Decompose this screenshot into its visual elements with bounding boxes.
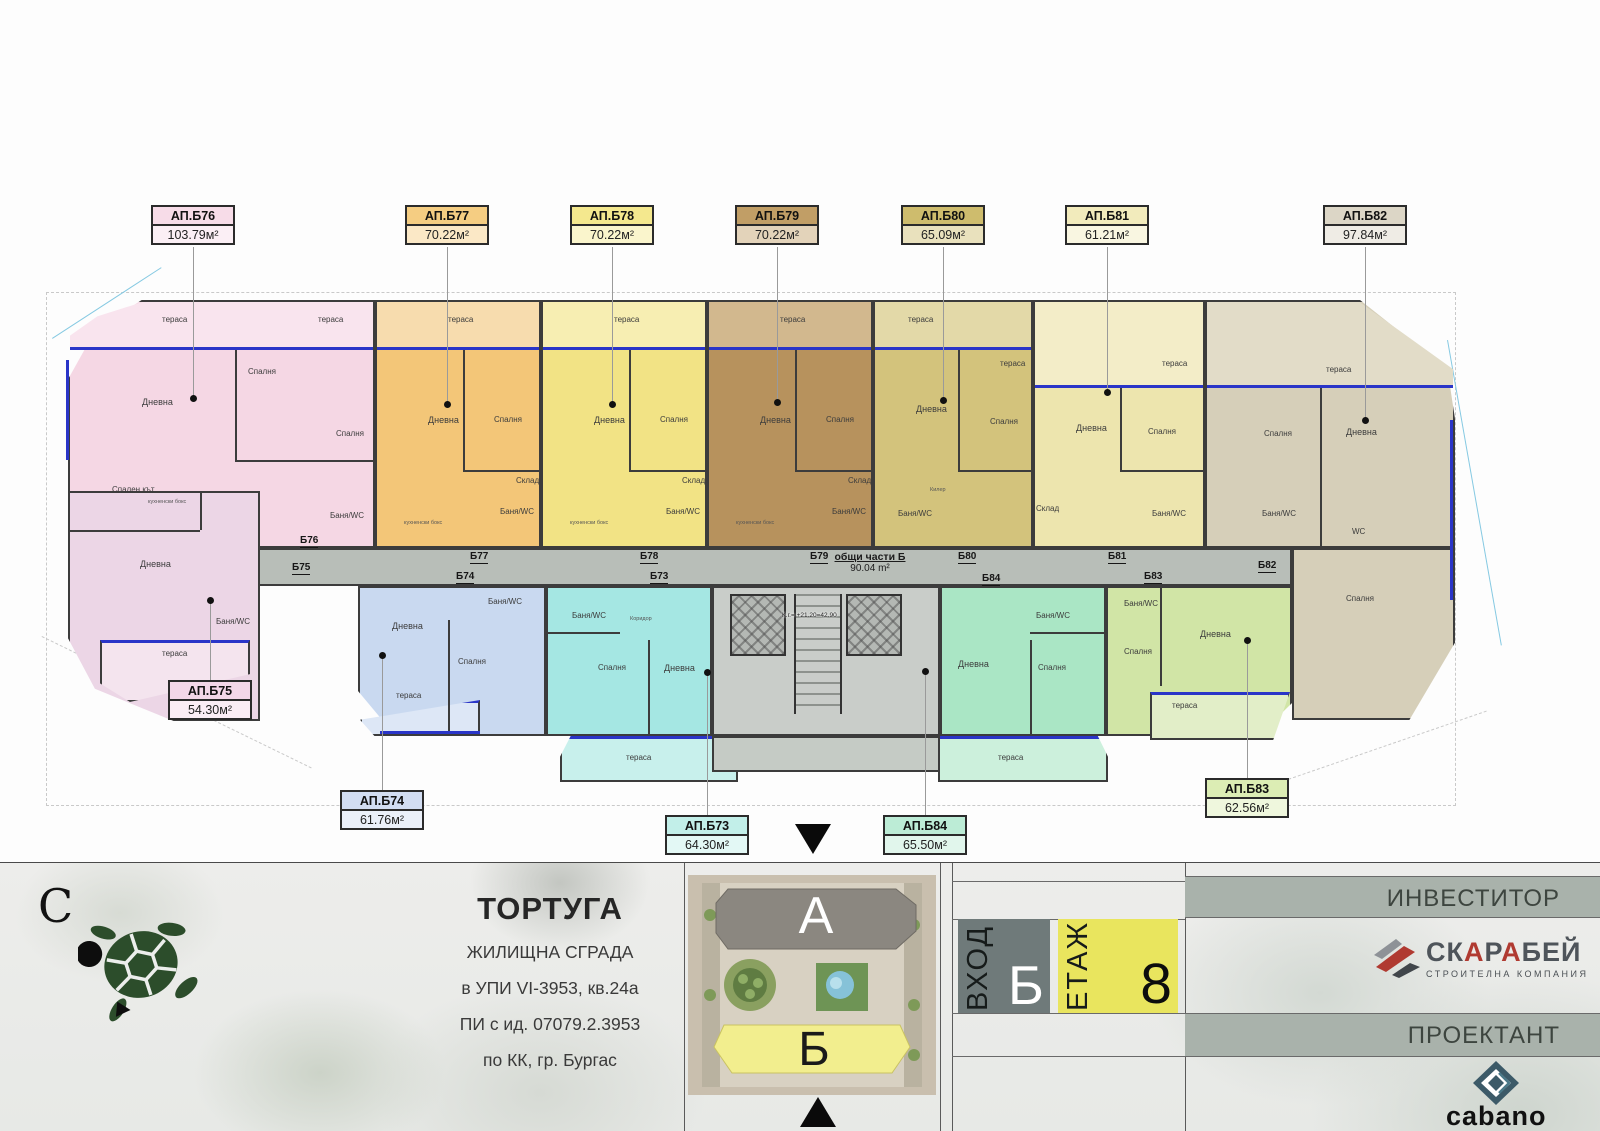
room-label: Спалня xyxy=(1124,648,1152,656)
corridor-tag-b77: Б77 xyxy=(470,551,488,564)
apartment-label-b80: АП.Б80 65.09м² xyxy=(901,205,985,245)
room-label: тераса xyxy=(998,754,1023,762)
room-label: Баня/WC xyxy=(898,510,932,518)
room-label: Дневна xyxy=(760,416,791,425)
room-label: Спалня xyxy=(1038,664,1066,672)
leader-line xyxy=(1247,640,1248,778)
room-label: Дневна xyxy=(428,416,459,425)
page: общи части Б 90.04 m² Б76 Б75 Б77 Б78 Б7… xyxy=(0,0,1600,1131)
entrance-label: ВХОД xyxy=(964,921,993,1011)
room-label: Спалня xyxy=(1346,595,1374,603)
apartment-area: 70.22м² xyxy=(737,226,817,243)
terrace-b77 xyxy=(377,302,539,350)
wall xyxy=(795,350,797,470)
room-label: Склад xyxy=(516,477,539,485)
wall xyxy=(795,470,873,472)
room-label: Килер xyxy=(930,488,946,494)
investor-brand: СКАРАБЕЙ xyxy=(1426,939,1588,966)
apartment-label-b84: АП.Б84 65.50м² xyxy=(883,815,967,855)
room-label: Баня/WC xyxy=(1262,510,1296,518)
divider xyxy=(952,1056,1185,1057)
apartment-id: АП.Б74 xyxy=(342,792,422,811)
apartment-id: АП.Б84 xyxy=(885,817,965,836)
corridor-tag-b84: Б84 xyxy=(982,573,1000,586)
apartment-area: 70.22м² xyxy=(572,226,652,243)
room-label: тераса xyxy=(318,316,343,324)
room-label: Спалня xyxy=(248,368,276,376)
apartment-id: АП.Б81 xyxy=(1067,207,1147,226)
terrace-b78 xyxy=(543,302,705,350)
room-label: Дневна xyxy=(958,660,989,669)
corridor-tag-b73: Б73 xyxy=(650,571,668,584)
floor-box: ЕТАЖ 8 xyxy=(1058,919,1178,1013)
floor-label: ЕТАЖ xyxy=(1064,921,1093,1011)
corridor-common-area: 90.04 m² xyxy=(800,563,940,574)
room-label: Спалня xyxy=(494,416,522,424)
apartment-label-b76: АП.Б76 103.79м² xyxy=(151,205,235,245)
terrace-common-center xyxy=(712,736,940,772)
room-label: тераса xyxy=(396,692,421,700)
leader-line xyxy=(612,247,613,404)
corridor-tag-b75: Б75 xyxy=(292,562,310,575)
room-label: тераса xyxy=(780,316,805,324)
leader-line xyxy=(447,247,448,404)
room-label: кухненски бокс xyxy=(736,521,774,527)
wall xyxy=(1120,388,1122,470)
apartment-label-b73: АП.Б73 64.30м² xyxy=(665,815,749,855)
apartment-label-b81: АП.Б81 61.21м² xyxy=(1065,205,1149,245)
turtle-logo-icon xyxy=(78,909,203,1027)
corridor-tag-b82: Б82 xyxy=(1258,560,1276,573)
room-label: Баня/WC xyxy=(572,612,606,620)
room-label: Склад xyxy=(1036,505,1059,513)
terrace-b83 xyxy=(1150,692,1290,740)
leader-line xyxy=(210,600,211,680)
entrance-arrow-up-icon xyxy=(800,1097,836,1127)
apartment-area: 61.21м² xyxy=(1067,226,1147,243)
project-line: ПИ с ид. 07079.2.3953 xyxy=(425,1014,675,1035)
entrance-value: Б xyxy=(1008,959,1044,1011)
leader-line xyxy=(777,247,778,402)
apartment-id: АП.Б75 xyxy=(170,682,250,701)
apartment-area: 64.30м² xyxy=(667,836,747,853)
room-label: тераса xyxy=(614,316,639,324)
window-line xyxy=(1450,420,1453,600)
floor-value: 8 xyxy=(1140,957,1172,1011)
room-label: Дневна xyxy=(916,405,947,414)
apartment-area: 103.79м² xyxy=(153,226,233,243)
room-label: Спалня xyxy=(458,658,486,666)
siteplan-building-b: Б xyxy=(798,1023,830,1076)
apartment-id: АП.Б83 xyxy=(1207,780,1287,799)
investor-band: ИНВЕСТИТОР xyxy=(1185,876,1600,918)
apartment-area: 97.84м² xyxy=(1325,226,1405,243)
leader-dot xyxy=(609,401,616,408)
leader-dot xyxy=(1362,417,1369,424)
room-label: Спалня xyxy=(598,664,626,672)
wall xyxy=(1120,470,1205,472)
room-label: WC xyxy=(1352,528,1365,536)
room-label: Спалня xyxy=(1148,428,1176,436)
project-title: ТОРТУГА xyxy=(425,891,675,927)
apartment-area: 65.09м² xyxy=(903,226,983,243)
apartment-id: АП.Б80 xyxy=(903,207,983,226)
room-label: Баня/WC xyxy=(500,508,534,516)
leader-dot xyxy=(379,652,386,659)
leader-line xyxy=(193,247,194,398)
leader-dot xyxy=(922,668,929,675)
apartment-label-b78: АП.Б78 70.22м² xyxy=(570,205,654,245)
wall xyxy=(463,350,465,470)
investor-logo: СКАРАБЕЙ СТРОИТЕЛНА КОМПАНИЯ xyxy=(1372,939,1588,979)
room-label: Баня/WC xyxy=(666,508,700,516)
leader-line xyxy=(382,655,383,790)
corridor-tag-b81: Б81 xyxy=(1108,551,1126,564)
room-label: Спалня xyxy=(336,430,364,438)
room-label: Дневна xyxy=(392,622,423,631)
investor-brand-subtitle: СТРОИТЕЛНА КОМПАНИЯ xyxy=(1426,969,1588,979)
wall xyxy=(463,470,541,472)
leader-line xyxy=(707,672,708,815)
designer-label: ПРОЕКТАНТ xyxy=(1408,1022,1560,1050)
corridor xyxy=(258,548,1292,586)
room-label: Баня/WC xyxy=(1152,510,1186,518)
leader-line xyxy=(1107,247,1108,392)
room-label: кухненски бокс xyxy=(148,500,186,506)
leader-line xyxy=(1365,247,1366,420)
apartment-b73 xyxy=(546,586,712,736)
siteplan-building-a: А xyxy=(799,887,834,945)
wall xyxy=(648,640,650,736)
wall xyxy=(1030,632,1106,634)
wall xyxy=(629,350,631,470)
apartment-area: 54.30м² xyxy=(170,701,250,718)
room-label: тераса xyxy=(1172,702,1197,710)
room-label: Спалня xyxy=(1264,430,1292,438)
room-label: Спалня xyxy=(660,416,688,424)
wall xyxy=(235,460,375,462)
corridor-tag-b76: Б76 xyxy=(300,535,318,548)
wall xyxy=(958,470,1033,472)
room-label: Дневна xyxy=(142,398,173,407)
entrance-box: ВХОД Б xyxy=(958,919,1050,1013)
leader-line xyxy=(925,671,926,815)
apartment-id: АП.Б76 xyxy=(153,207,233,226)
leader-dot xyxy=(704,669,711,676)
apartment-area: 62.56м² xyxy=(1207,799,1287,816)
apartment-label-b82: АП.Б82 97.84м² xyxy=(1323,205,1407,245)
room-label: Баня/WC xyxy=(330,512,364,520)
leader-dot xyxy=(940,397,947,404)
window-line xyxy=(380,731,480,734)
entrance-arrow-down-icon xyxy=(795,824,831,854)
wall xyxy=(546,632,620,634)
core-level-note: К.г.= +21.20=42.90 xyxy=(782,612,837,619)
room-label: тераса xyxy=(1162,360,1187,368)
room-label: Баня/WC xyxy=(1036,612,1070,620)
apartment-label-b75: АП.Б75 54.30м² xyxy=(168,680,252,720)
divider xyxy=(940,863,941,1131)
room-label: Склад xyxy=(848,477,871,485)
room-label: Спалня xyxy=(990,418,1018,426)
elevator-icon xyxy=(730,594,786,656)
apartment-id: АП.Б78 xyxy=(572,207,652,226)
room-label: Дневна xyxy=(140,560,171,569)
elevator-icon xyxy=(846,594,902,656)
apartment-area: 70.22м² xyxy=(407,226,487,243)
room-label: Коридор xyxy=(630,617,652,623)
room-label: кухненски бокс xyxy=(404,521,442,527)
divider xyxy=(684,863,685,1131)
wall xyxy=(1320,388,1322,548)
wall xyxy=(1030,640,1032,736)
corridor-tag-b80: Б80 xyxy=(958,551,976,564)
cabano-logo-icon xyxy=(1473,1061,1519,1105)
investor-brand-block: СКАРАБЕЙ СТРОИТЕЛНА КОМПАНИЯ xyxy=(1426,939,1588,979)
corridor-tag-b74: Б74 xyxy=(456,571,474,584)
project-title-block: ТОРТУГА ЖИЛИЩНА СГРАДА в УПИ VI-3953, кв… xyxy=(425,891,675,1071)
corridor-tag-b79: Б79 xyxy=(810,551,828,564)
terrace-b79 xyxy=(709,302,871,350)
investor-label: ИНВЕСТИТОР xyxy=(1387,885,1560,913)
designer-band: ПРОЕКТАНТ xyxy=(1185,1013,1600,1057)
scarab-logo-icon xyxy=(1372,939,1422,979)
leader-dot xyxy=(1104,389,1111,396)
room-label: тераса xyxy=(1000,360,1025,368)
room-label: тераса xyxy=(1326,366,1351,374)
room-label: Баня/WC xyxy=(1124,600,1158,608)
window-line xyxy=(66,360,69,460)
room-label: Спалня xyxy=(826,416,854,424)
apartment-id: АП.Б73 xyxy=(667,817,747,836)
room-label: Спален кът xyxy=(112,486,154,494)
room-label: кухненски бокс xyxy=(570,521,608,527)
designer-brand: cabano xyxy=(1446,1101,1547,1131)
room-label: Баня/WC xyxy=(488,598,522,606)
leader-dot xyxy=(1244,637,1251,644)
north-indicator: С xyxy=(38,879,73,933)
leader-dot xyxy=(444,401,451,408)
apartment-id: АП.Б82 xyxy=(1325,207,1405,226)
leader-dot xyxy=(207,597,214,604)
wall xyxy=(448,620,450,736)
divider xyxy=(952,881,1185,882)
leader-line xyxy=(943,247,944,400)
room-label: тераса xyxy=(626,754,651,762)
site-plan: А Б xyxy=(688,875,936,1095)
apartment-id: АП.Б77 xyxy=(407,207,487,226)
apartment-area: 65.50м² xyxy=(885,836,965,853)
divider xyxy=(952,863,953,1131)
room-label: тераса xyxy=(448,316,473,324)
room-label: Дневна xyxy=(1200,630,1231,639)
corridor-tag-b83: Б83 xyxy=(1144,571,1162,584)
apartment-label-b77: АП.Б77 70.22м² xyxy=(405,205,489,245)
leader-dot xyxy=(190,395,197,402)
room-label: Дневна xyxy=(664,664,695,673)
wall xyxy=(235,350,237,460)
apartment-label-b79: АП.Б79 70.22м² xyxy=(735,205,819,245)
apartment-label-b74: АП.Б74 61.76м² xyxy=(340,790,424,830)
project-line: ЖИЛИЩНА СГРАДА xyxy=(425,942,675,963)
room-label: Дневна xyxy=(1076,424,1107,433)
project-line: в УПИ VI-3953, кв.24а xyxy=(425,978,675,999)
terrace-b80 xyxy=(875,302,1031,350)
terrace-b81 xyxy=(1035,302,1203,388)
corridor-tag-b78: Б78 xyxy=(640,551,658,564)
wall xyxy=(958,350,960,470)
wall xyxy=(200,491,202,530)
apartment-area: 61.76м² xyxy=(342,811,422,828)
apartment-id: АП.Б79 xyxy=(737,207,817,226)
room-label: тераса xyxy=(162,316,187,324)
title-block-footer: С ТОРТУГА ЖИЛИЩНА СГРАДА xyxy=(0,862,1600,1131)
room-label: Баня/WC xyxy=(832,508,866,516)
room-label: Баня/WC xyxy=(216,618,250,626)
room-label: Дневна xyxy=(1346,428,1377,437)
wall xyxy=(629,470,707,472)
room-label: Склад xyxy=(682,477,705,485)
room-label: тераса xyxy=(908,316,933,324)
wall xyxy=(68,530,200,532)
apartment-label-b83: АП.Б83 62.56м² xyxy=(1205,778,1289,818)
leader-dot xyxy=(774,399,781,406)
room-label: Дневна xyxy=(594,416,625,425)
project-line: по КК, гр. Бургас xyxy=(425,1050,675,1071)
room-label: тераса xyxy=(162,650,187,658)
wall xyxy=(1160,586,1162,686)
